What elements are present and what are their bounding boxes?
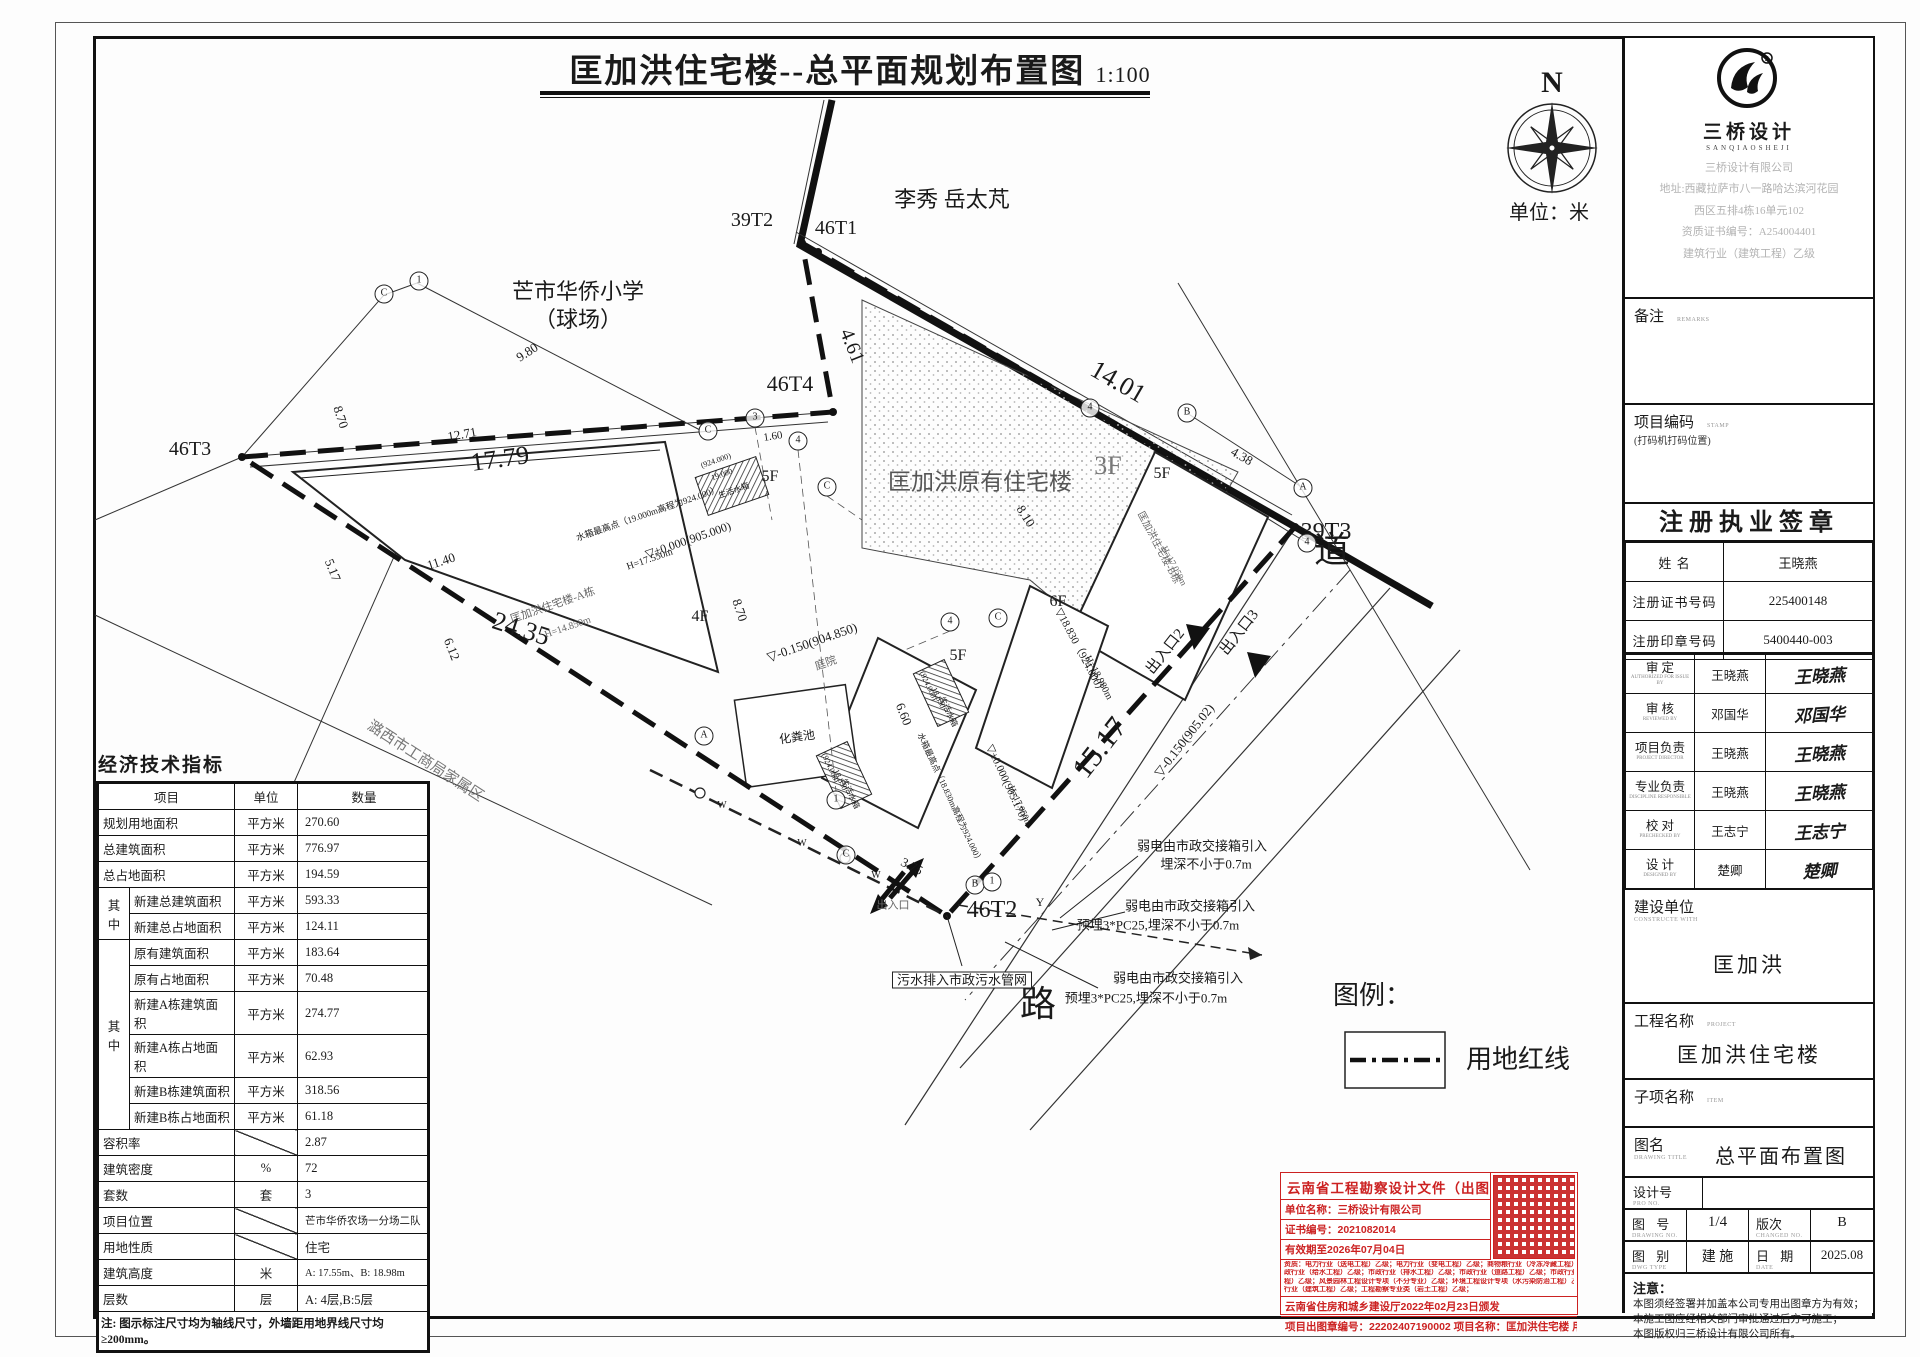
project-box: 工程名称 PROJECT 匡加洪住宅楼 — [1625, 1002, 1873, 1078]
econ-header-unit: 单位 — [235, 783, 298, 810]
econ-row: 用地性质住宅 — [98, 1234, 429, 1260]
rev-label: 版次 — [1756, 1217, 1782, 1232]
remarks-en: REMARKS — [1668, 317, 1710, 323]
type-en: DWG TYPE — [1632, 1265, 1686, 1271]
building-a-4f — [293, 442, 718, 672]
title-block: R 三桥设计 SANQIAOSHEJI 三桥设计有限公司地址:西藏拉萨市八一路哈… — [1622, 36, 1873, 1313]
econ-row: 层数层A: 4层,B:5层 — [98, 1286, 429, 1312]
item-box: 子项名称 ITEM — [1625, 1078, 1873, 1126]
sheetno-label: 图 号 — [1632, 1217, 1673, 1232]
reg-name: 王晓燕 — [1724, 543, 1873, 582]
dwgname-value: 总平面布置图 — [1715, 1140, 1847, 1169]
signature-table: 审 定AUTHORIZED FOR ISSUE BY王晓燕王晓燕审 核REVIE… — [1625, 652, 1873, 888]
econ-row: 建筑高度米A: 17.55m、B: 18.98m — [98, 1260, 429, 1286]
project-value: 匡加洪住宅楼 — [1625, 1039, 1873, 1069]
project-label: 工程名称 — [1625, 1004, 1694, 1031]
econ-table: 经济技术指标 项目 单位 数量 规划用地面积平方米270.60总建筑面积平方米7… — [96, 750, 432, 1353]
reg-cert-label: 注册证书号码 — [1626, 582, 1724, 621]
owner-value: 匡加洪 — [1625, 949, 1873, 979]
designno-label: 设计号 — [1633, 1185, 1672, 1200]
signature-row: 项目负责PROJECT DIRECTOR王晓燕王晓燕 — [1626, 733, 1873, 772]
sheetno-en: DRAWING NO. — [1632, 1233, 1686, 1239]
econ-row: 其中新建总建筑面积平方米593.33 — [98, 888, 429, 914]
stamp-footer: 项目出图章编号：22202407190002 项目名称：匡加洪住宅楼 用途：施工… — [1281, 1317, 1577, 1336]
qr-code — [1493, 1175, 1575, 1259]
econ-header-row: 项目 单位 数量 — [98, 783, 429, 810]
notice-box: 注意： 本图须经签署并加盖本公司专用出图章方为有效；本施工图应经相关部门审批通过… — [1625, 1272, 1873, 1349]
signature-row: 专业负责DISCIPLINE RESPONSIBLE王晓燕王晓燕 — [1626, 772, 1873, 811]
design-no-row: 设计号 PRO NO. — [1625, 1176, 1873, 1208]
econ-row: 项目位置芒市华侨农场一分场二队 — [98, 1208, 429, 1234]
drawing-name-box: 图名 DRAWING TITLE 总平面布置图 — [1625, 1126, 1873, 1176]
signature-row: 校 对PRECHECKED BY王志宁王志宁 — [1626, 811, 1873, 850]
reg-cert-no: 225400148 — [1724, 582, 1873, 621]
title-scale: 1:100 — [1096, 62, 1151, 87]
econ-row: 其中原有建筑面积平方米183.64 — [98, 940, 429, 966]
econ-row: 规划用地面积平方米270.60 — [98, 810, 429, 836]
svg-text:R: R — [1765, 55, 1770, 63]
water-tank-a — [695, 457, 769, 516]
date-label: 日 期 — [1756, 1249, 1797, 1264]
title-underline — [540, 91, 1150, 95]
owner-box: 建设单位 CONSTRUCTE WITH 匡加洪 — [1625, 888, 1873, 1002]
owner-label: 建设单位 — [1625, 890, 1694, 917]
sheetno-value: 1/4 — [1687, 1210, 1749, 1240]
signature-header: 注册执业签章 — [1625, 502, 1873, 540]
econ-table-title: 经济技术指标 — [98, 750, 432, 777]
stamp-valid: 有效期至2026年07月04日 — [1281, 1240, 1491, 1260]
stamp-cert: 证书编号：2021082014 — [1281, 1220, 1491, 1240]
econ-header-qty: 数量 — [298, 783, 429, 810]
designno-value — [1703, 1178, 1873, 1208]
company-name: 三桥设计 — [1625, 117, 1873, 144]
type-label: 图 别 — [1632, 1249, 1673, 1264]
project-code-en: STAMP — [1698, 423, 1729, 429]
company-block: R 三桥设计 SANQIAOSHEJI 三桥设计有限公司地址:西藏拉萨市八一路哈… — [1625, 36, 1873, 297]
econ-row: 总建筑面积平方米776.97 — [98, 836, 429, 862]
issue-stamp: 云南省工程勘察设计文件（出图）专用章 单位名称：三桥设计有限公司 证书编号：20… — [1280, 1172, 1578, 1315]
designno-en: PRO NO. — [1633, 1201, 1702, 1207]
company-info-lines: 三桥设计有限公司地址:西藏拉萨市八一路哈达滨河花园西区五排4栋16单元102资质… — [1625, 158, 1873, 265]
project-code-label: 项目编码 — [1625, 405, 1694, 432]
north-compass: N — [1494, 70, 1610, 202]
remarks-label: 备注 — [1625, 299, 1664, 326]
stamp-qualifications: 资质：电力行业（送电工程）乙级；电力行业（变电工程）乙级；商物粮行业（冷冻冷藏工… — [1281, 1260, 1577, 1297]
item-label: 子项名称 — [1625, 1080, 1694, 1107]
legend-symbol — [1345, 1032, 1445, 1088]
date-en: DATE — [1756, 1265, 1810, 1271]
econ-row: 建筑密度%72 — [98, 1156, 429, 1182]
item-en: ITEM — [1698, 1098, 1724, 1104]
sheet-type-row: 图 别 DWG TYPE 建 施 日 期 DATE 2025.08 — [1625, 1240, 1873, 1272]
stamp-issuer: 云南省住房和城乡建设厅2022年02月23日颁发 — [1281, 1297, 1577, 1317]
north-letter: N — [1494, 66, 1610, 100]
remarks-box: 备注 REMARKS — [1625, 297, 1873, 403]
project-code-box: 项目编码 STAMP (打码机打码位置) — [1625, 403, 1873, 502]
reg-name-label: 姓 名 — [1626, 543, 1724, 582]
signature-row: 设 计DESIGNED BY楚卿楚卿 — [1626, 850, 1873, 889]
title-underline-2 — [540, 97, 1150, 98]
date-value: 2025.08 — [1811, 1242, 1873, 1272]
type-value: 建 施 — [1687, 1242, 1749, 1272]
rev-value: B — [1811, 1210, 1873, 1240]
dwgname-label: 图名 — [1625, 1128, 1664, 1155]
project-code-sub: (打码机打码位置) — [1625, 432, 1873, 447]
econ-row: 新建B栋建筑面积平方米318.56 — [98, 1078, 429, 1104]
econ-row: 原有占地面积平方米70.48 — [98, 966, 429, 992]
rev-en: CHANGED NO. — [1756, 1233, 1810, 1239]
econ-row: 新建总占地面积平方米124.11 — [98, 914, 429, 940]
econ-row: 总占地面积平方米194.59 — [98, 862, 429, 888]
stamp-title: 云南省工程勘察设计文件（出图）专用章 — [1281, 1173, 1491, 1200]
registration-table: 姓 名 王晓燕 注册证书号码 225400148 注册印章号码 5400440-… — [1625, 540, 1873, 652]
stamp-unit: 单位名称：三桥设计有限公司 — [1281, 1200, 1491, 1220]
econ-row: 套数套3 — [98, 1182, 429, 1208]
project-en: PROJECT — [1698, 1022, 1736, 1028]
econ-row: 容积率2.87 — [98, 1130, 429, 1156]
econ-row: 新建B栋占地面积平方米61.18 — [98, 1104, 429, 1130]
title-text: 匡加洪住宅楼--总平面规划布置图 — [569, 54, 1085, 90]
company-latin: SANQIAOSHEJI — [1625, 144, 1873, 152]
signature-row: 审 定AUTHORIZED FOR ISSUE BY王晓燕王晓燕 — [1626, 655, 1873, 694]
econ-note: 注: 图示标注尺寸均为轴线尺寸，外墙距用地界线尺寸均≥200mm。 — [98, 1312, 429, 1352]
company-logo: R — [1625, 38, 1873, 117]
econ-header-item: 项目 — [98, 783, 235, 810]
owner-en: CONSTRUCTE WITH — [1625, 917, 1873, 923]
signature-row: 审 核REVIEWED BY邓国华邓国华 — [1626, 694, 1873, 733]
drawing-title: 匡加洪住宅楼--总平面规划布置图 1:100 — [440, 44, 1280, 92]
notice-title: 注意： — [1625, 1274, 1873, 1297]
drawing-sheet: { "title": {"text": "匡加洪住宅楼--总平面规划布置图", … — [0, 0, 1920, 1357]
sheet-no-row: 图 号 DRAWING NO. 1/4 版次 CHANGED NO. B — [1625, 1208, 1873, 1240]
econ-row: 新建A栋占地面积平方米62.93 — [98, 1035, 429, 1078]
econ-row: 新建A栋建筑面积平方米274.77 — [98, 992, 429, 1035]
